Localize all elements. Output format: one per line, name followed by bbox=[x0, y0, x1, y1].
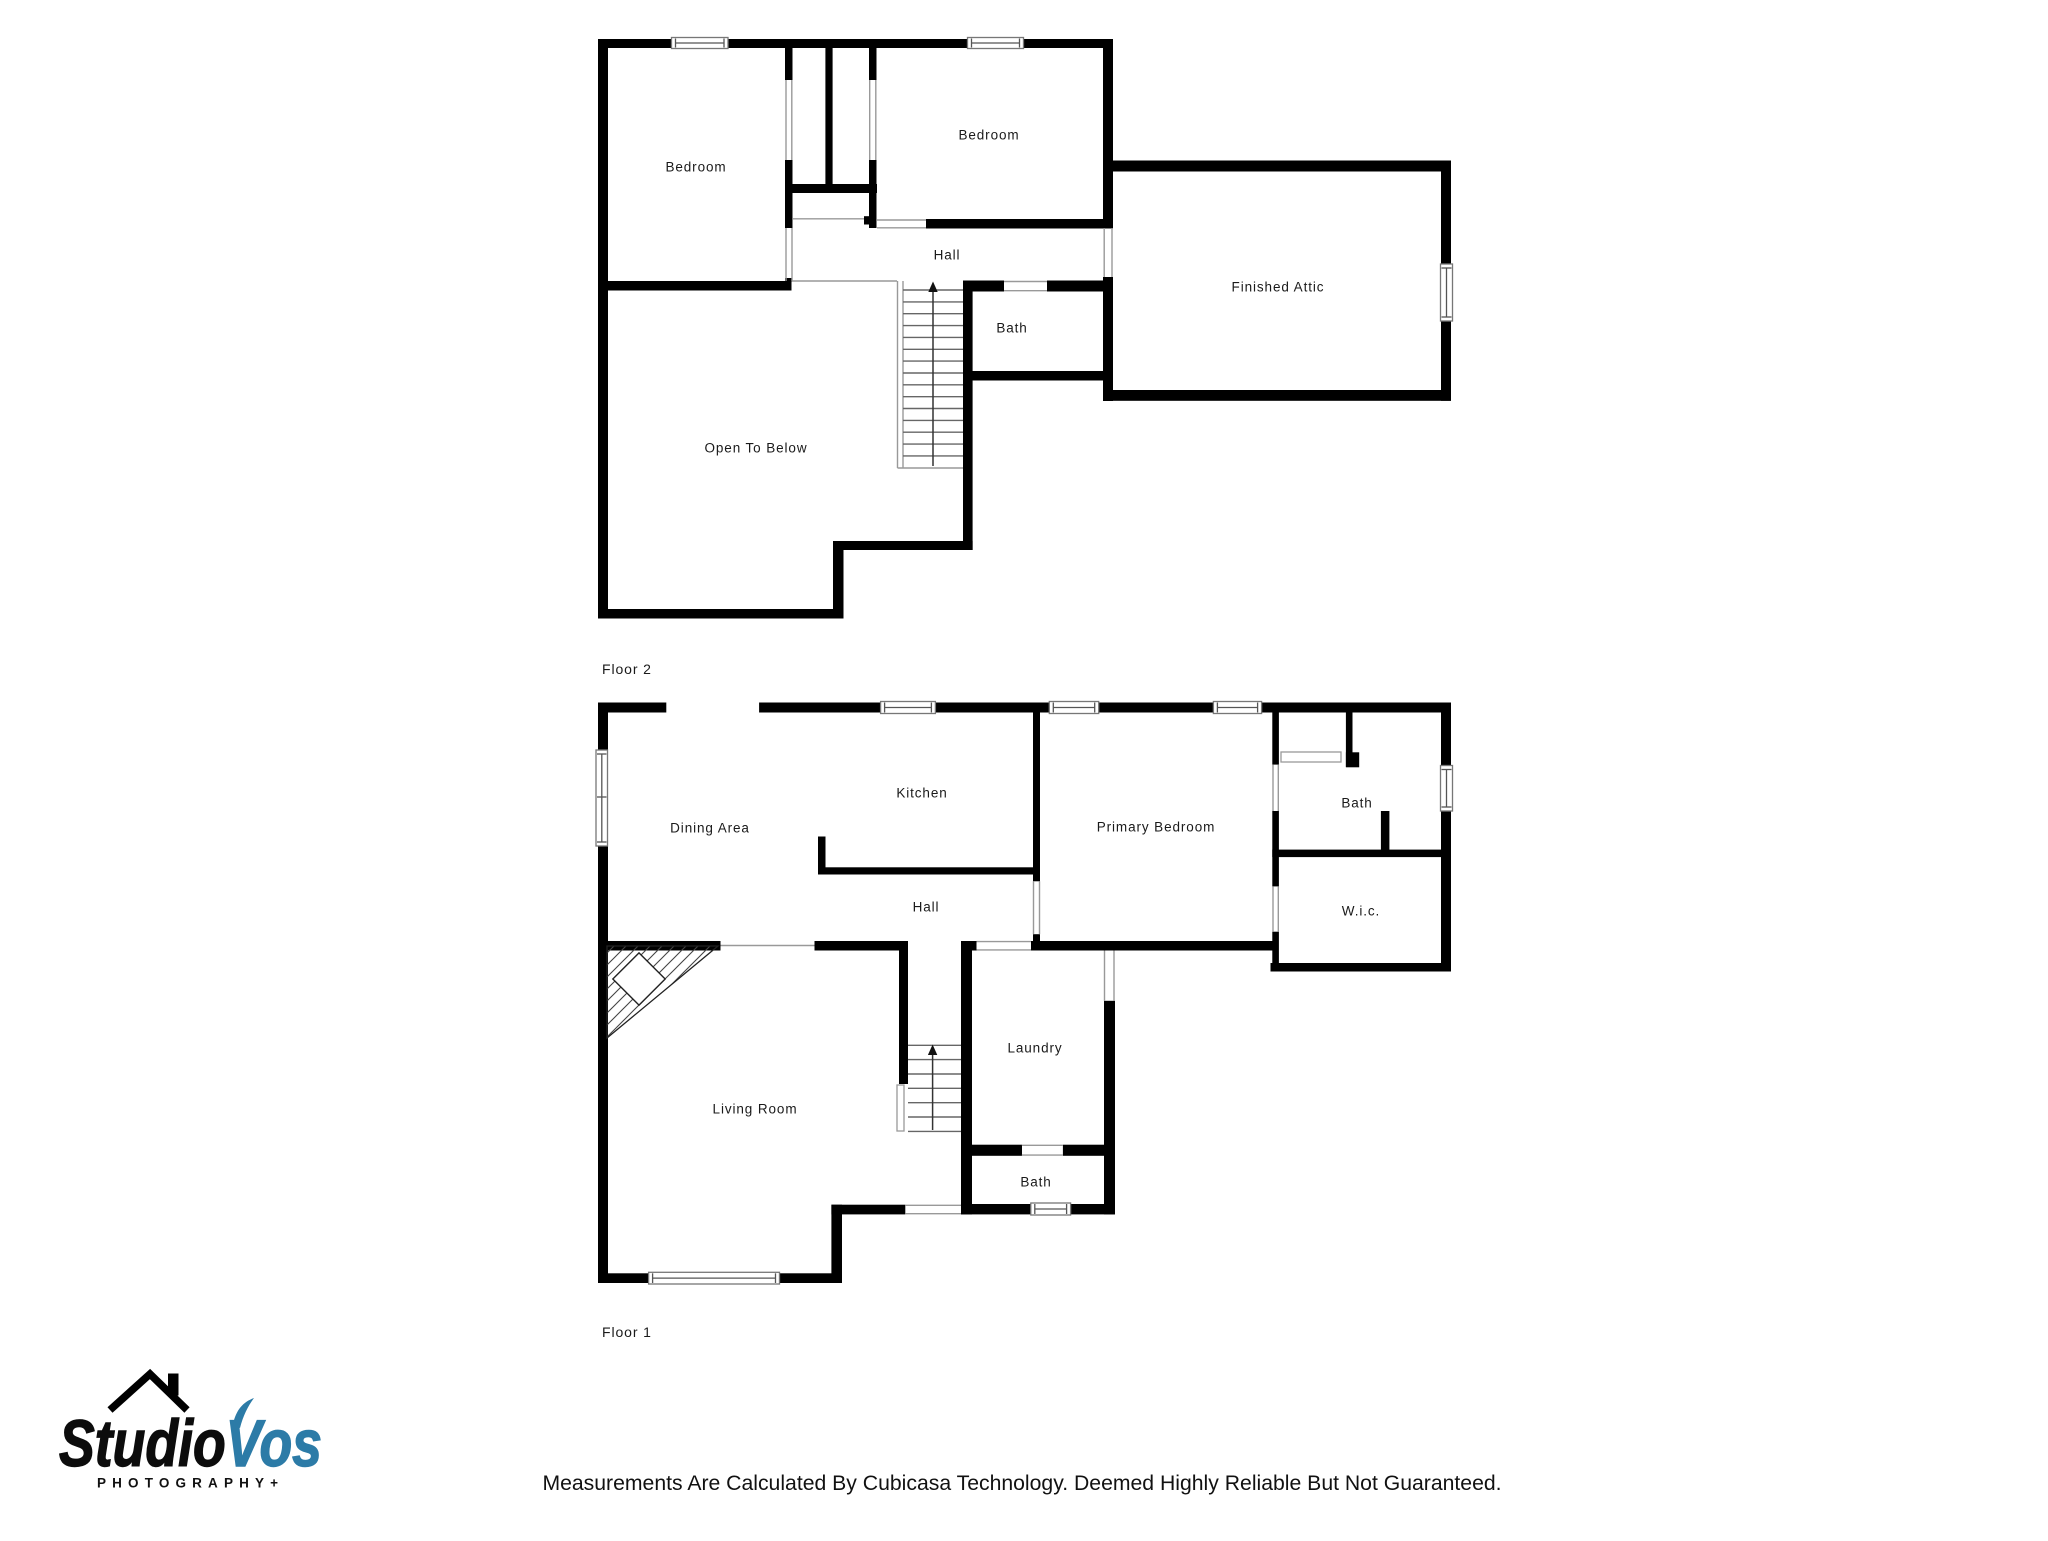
svg-text:PHOTOGRAPHY+: PHOTOGRAPHY+ bbox=[97, 1476, 284, 1491]
svg-text:Bedroom: Bedroom bbox=[665, 160, 726, 175]
svg-text:Hall: Hall bbox=[934, 248, 961, 263]
svg-text:Bath: Bath bbox=[1341, 796, 1372, 811]
svg-text:Finished Attic: Finished Attic bbox=[1232, 280, 1325, 295]
svg-text:Laundry: Laundry bbox=[1007, 1041, 1062, 1056]
svg-text:W.i.c.: W.i.c. bbox=[1342, 904, 1380, 919]
svg-text:StudioVos: StudioVos bbox=[59, 1406, 322, 1480]
svg-text:Primary Bedroom: Primary Bedroom bbox=[1097, 820, 1216, 835]
svg-text:Floor 1: Floor 1 bbox=[602, 1324, 652, 1340]
svg-text:Bath: Bath bbox=[1020, 1175, 1051, 1190]
svg-text:Open To Below: Open To Below bbox=[704, 441, 807, 456]
svg-text:Kitchen: Kitchen bbox=[896, 786, 947, 801]
svg-text:Bedroom: Bedroom bbox=[958, 128, 1019, 143]
svg-text:Hall: Hall bbox=[913, 900, 940, 915]
svg-text:Dining Area: Dining Area bbox=[670, 821, 750, 836]
svg-text:Measurements Are Calculated By: Measurements Are Calculated By Cubicasa … bbox=[542, 1472, 1501, 1495]
svg-text:Floor 2: Floor 2 bbox=[602, 661, 652, 677]
svg-text:Living Room: Living Room bbox=[713, 1102, 798, 1117]
svg-text:Bath: Bath bbox=[996, 321, 1027, 336]
